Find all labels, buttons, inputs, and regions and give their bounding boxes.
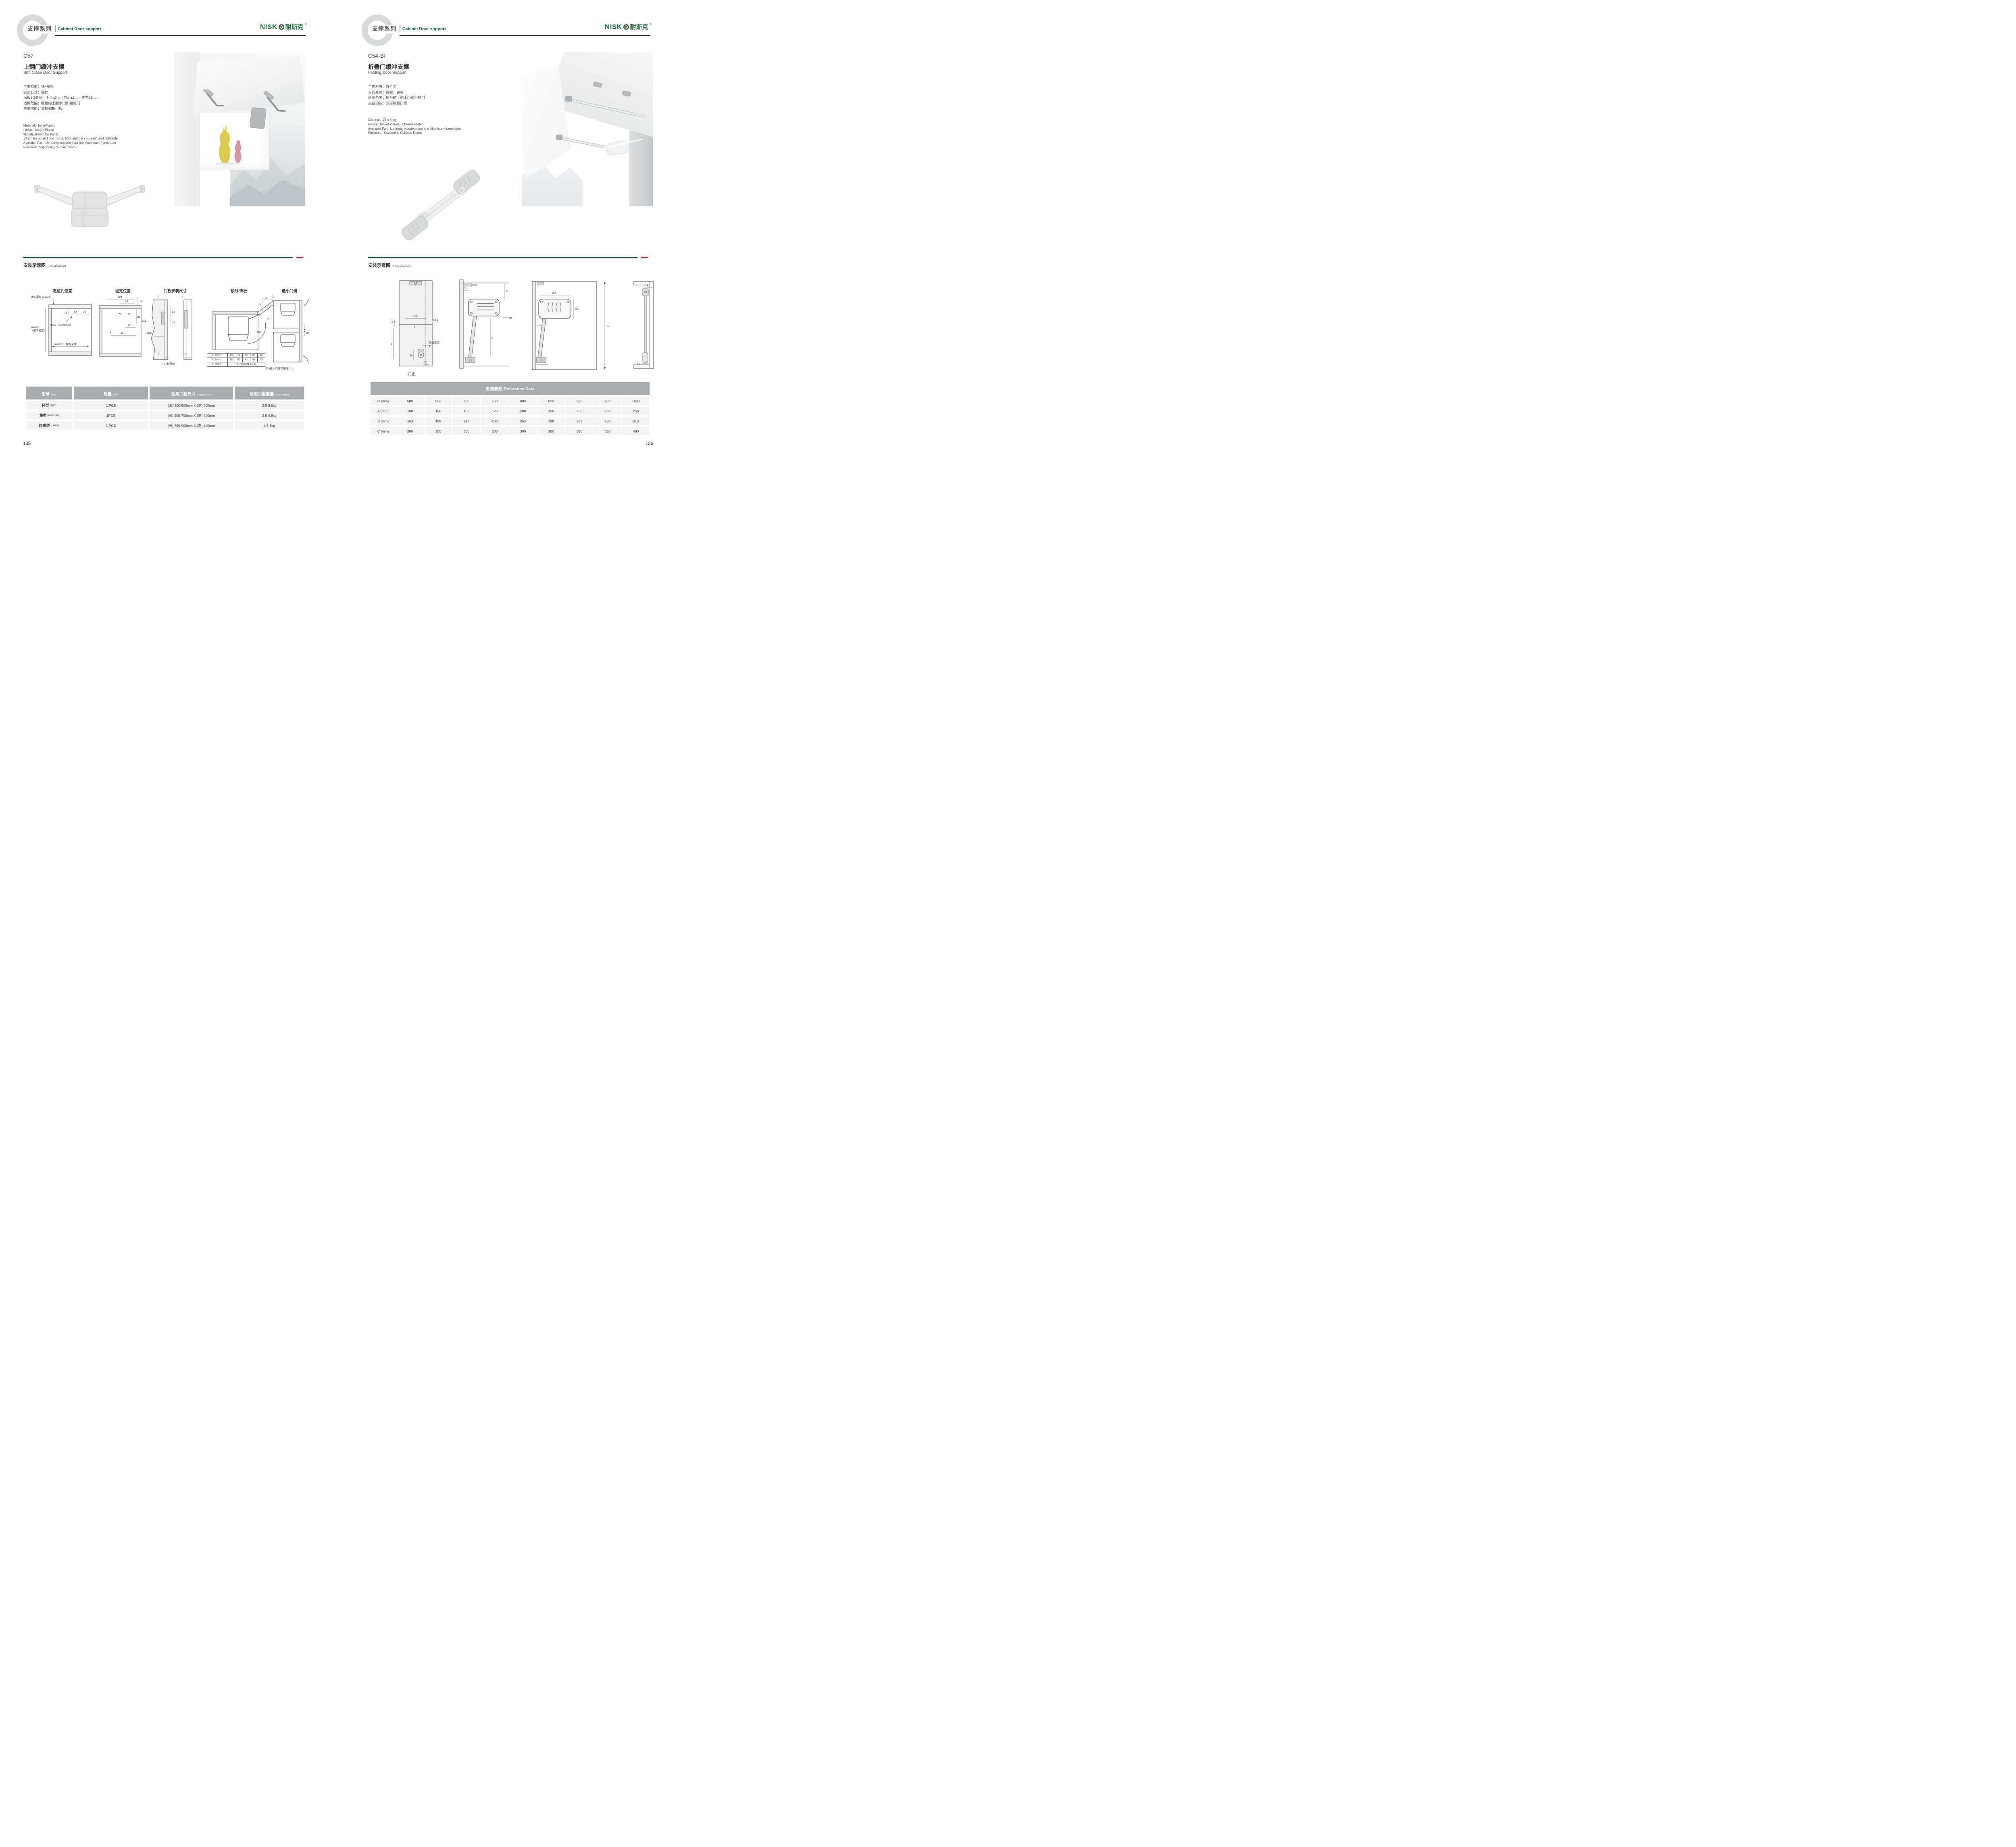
logo-o-icon bbox=[623, 24, 629, 30]
ref-cell: 288 bbox=[537, 417, 565, 425]
dim-label: 14.5 bbox=[390, 321, 396, 324]
ref-cell: 288 bbox=[594, 417, 621, 425]
dim-label: 12 bbox=[140, 300, 143, 303]
ref-cell: 208 bbox=[481, 417, 508, 425]
spec-line: Function：Supoorting Cabined Doors bbox=[23, 146, 118, 150]
ref-cell: 350 bbox=[566, 427, 593, 435]
dim-label: 64 bbox=[74, 311, 77, 314]
ref-cell: 200 bbox=[396, 427, 424, 435]
ref-cell: 213 bbox=[453, 417, 480, 425]
logo-registered-mark: ® bbox=[650, 23, 652, 26]
spec-line: 主要材质：锌合金 bbox=[368, 84, 425, 90]
table-cell: 1 PCS bbox=[74, 421, 148, 430]
header-rule bbox=[55, 35, 306, 36]
ref-cell: 900 bbox=[566, 397, 593, 405]
ref-cell: 188 bbox=[425, 417, 452, 425]
diagram-caption: T=门板厚度 bbox=[161, 362, 175, 366]
ref-cell: 200 bbox=[425, 427, 452, 435]
ref-cell: 263 bbox=[566, 417, 593, 425]
ref-cell: 200 bbox=[566, 407, 593, 415]
dim-label: 102 bbox=[575, 308, 579, 310]
ref-row-label: A (mm) bbox=[371, 407, 396, 415]
header-rule bbox=[400, 35, 650, 36]
photo-support-arms bbox=[522, 52, 653, 206]
ref-cell: 850 bbox=[537, 397, 565, 405]
series-title-en: Cabinet Door support bbox=[402, 27, 446, 31]
table-cell: 4.8-6kg bbox=[235, 421, 304, 430]
dim-label: MF bbox=[306, 332, 309, 335]
reference-table-title: 安装参数 Reference Data bbox=[371, 382, 650, 395]
dim-label: 124 bbox=[118, 296, 122, 299]
ref-cell: 100 bbox=[396, 407, 424, 415]
series-separator bbox=[400, 25, 400, 32]
page-number: 135 bbox=[23, 441, 31, 446]
catalog-spread: 支撑系列 Cabinet Door support NISK 耐斯克 ® C57… bbox=[0, 0, 676, 462]
logo-zh: 耐斯克 bbox=[285, 23, 304, 31]
table-cell: 重型(Medium) bbox=[26, 411, 72, 420]
ref-cell: 300 bbox=[453, 427, 480, 435]
ref-cell: 120 bbox=[481, 407, 508, 415]
ref-cell: 313 bbox=[622, 417, 650, 425]
diagram-caption: Fm最小门缝开启时2mm bbox=[266, 366, 314, 370]
series-title-zh: 支撑系列 bbox=[27, 25, 52, 33]
damper-block bbox=[250, 107, 266, 129]
dim-label: Φ5.2（深度5mm） bbox=[50, 323, 73, 327]
product-code: C57 bbox=[23, 53, 33, 59]
specs-zh: 主要材质：锌合金 表面处理：镀镍、镀铬 适用范围：橱柜的上翻木门和铝框门 主要功… bbox=[368, 84, 425, 106]
dim-label: min230（柜内深度） bbox=[54, 342, 79, 346]
table-header: 数量QTY bbox=[74, 387, 148, 399]
diagram-fixing-position: 固定位置 124 52 12 81 115 42 bbox=[97, 288, 149, 361]
reference-table: H (mm) 600 650 700 750 800 850 900 950 1… bbox=[371, 397, 650, 435]
dim-label: X bbox=[265, 297, 267, 300]
logo-dot-icon bbox=[280, 26, 282, 28]
diagram-door-profile: 24 12 bbox=[627, 278, 662, 374]
spec-line: 表面处理：镀镍 bbox=[23, 90, 98, 96]
spec-line: 3D adjustment for Panel： bbox=[23, 133, 118, 137]
divider-red bbox=[640, 257, 649, 258]
dim-label: A bbox=[506, 290, 508, 293]
folding-arm-lower bbox=[400, 183, 471, 242]
spec-line: Available For：Up-turnig wooden door and … bbox=[368, 127, 461, 131]
dim-label: 81 bbox=[137, 316, 141, 318]
spec-line: Finish：Nickel Plated、Chrome Plated bbox=[368, 123, 461, 127]
ref-cell: 250 bbox=[537, 407, 565, 415]
ref-cell: 250 bbox=[594, 407, 621, 415]
table-cell: (长) 500-700mm X (高) 400mm bbox=[150, 411, 233, 420]
diagram-cabinet-with-arm: 193 102 23 H 50 bbox=[528, 278, 613, 374]
product-title-en: Folding Door Support bbox=[368, 71, 406, 75]
ref-cell: 300 bbox=[481, 427, 508, 435]
table-header: 适用门板重量Door weight bbox=[235, 387, 304, 399]
spec-line: 主要功能：支撑橱柜门板 bbox=[368, 101, 425, 106]
logo-latin: NISK bbox=[605, 23, 622, 31]
dim-label: C bbox=[492, 337, 494, 339]
dim-label: 顶板厚度 max22 bbox=[31, 295, 50, 299]
spec-line: 表面处理：镀镍、镀铬 bbox=[368, 90, 425, 96]
dim-label: 12 bbox=[424, 361, 427, 364]
hardware-image-soft-close-supports bbox=[32, 185, 147, 229]
series-title-en: Cabinet Door support bbox=[58, 27, 101, 31]
ref-cell: 100 bbox=[453, 407, 480, 415]
dim-label: 12.5 bbox=[147, 332, 152, 335]
dim-label: T bbox=[181, 296, 183, 299]
dim-label: 侧板厚度 bbox=[429, 341, 440, 344]
ref-cell: 263 bbox=[509, 417, 537, 425]
divider-red bbox=[296, 257, 304, 258]
table-cell: 3.5-4.8kg bbox=[235, 411, 304, 420]
logo-latin: NISK bbox=[260, 23, 277, 31]
table-cell: (长) 700-900mm X (高) 400mm bbox=[150, 421, 233, 430]
product-title-zh: 上翻门缓冲支撑 bbox=[23, 62, 65, 71]
dim-label: 24 bbox=[645, 284, 648, 287]
ref-cell: 950 bbox=[594, 397, 621, 405]
specs-en: Material：Zinc Alloy Finish：Nickel Plated… bbox=[368, 118, 461, 135]
dim-label: 12 bbox=[637, 363, 640, 366]
photo-side-wall bbox=[174, 52, 200, 206]
spec-line: 适用范围：橱柜的上翻木门和铝框门 bbox=[368, 95, 425, 101]
dim-label: Y bbox=[259, 304, 261, 306]
ref-cell: 150 bbox=[425, 407, 452, 415]
spec-line: Material：Iron+Plastic bbox=[23, 124, 118, 128]
ref-cell: 350 bbox=[594, 427, 621, 435]
logo-o-icon bbox=[279, 24, 284, 30]
dim-label: 53 bbox=[172, 311, 175, 314]
logo-dot-icon bbox=[625, 26, 627, 28]
spec-line: ±2mm for up and down side, front and bac… bbox=[23, 137, 118, 141]
ref-cell: 300 bbox=[509, 427, 537, 435]
dim-label: min200 bbox=[31, 326, 40, 329]
dim-label: H bbox=[607, 325, 609, 328]
specs-zh: 主要材质：铁+塑料 表面处理：镀镍 面板3D调节：上下±2mm,前后±2mm,左… bbox=[23, 84, 98, 112]
ref-row-label: C (mm) bbox=[371, 427, 396, 435]
spec-line: 面板3D调节：上下±2mm,前后±2mm,左右±2mm bbox=[23, 95, 98, 101]
spec-table: 型号Type 数量QTY 适用门板尺寸Cabinet size 适用门板重量Do… bbox=[26, 387, 304, 430]
diagram-door-panel: 135 14.5 14.5 B 侧板厚度 54 12 bbox=[390, 278, 447, 372]
table-cell: 2.5-3.5kg bbox=[235, 401, 304, 410]
diagram-caption: 门板 bbox=[408, 372, 428, 376]
diagram-minimum-door-gap: 最小门缝 MF bbox=[269, 288, 310, 368]
dim-label: 110° bbox=[256, 331, 262, 334]
yellow-deer-figurine bbox=[219, 125, 230, 163]
specs-en: Material：Iron+Plastic Finish：Nickel Plat… bbox=[23, 124, 118, 150]
dim-label: T bbox=[185, 353, 187, 356]
dim-label: 42 bbox=[128, 324, 131, 327]
table-cell: 1PCS bbox=[74, 411, 148, 420]
photo-hinges bbox=[199, 89, 296, 130]
hardware-image-folding-arms bbox=[393, 157, 500, 246]
dim-label: 32 bbox=[172, 321, 175, 324]
dim-label: B bbox=[391, 343, 392, 345]
dim-label: 146 bbox=[119, 332, 124, 335]
ref-row-label: H (mm) bbox=[371, 397, 396, 405]
ref-cell: 400 bbox=[622, 427, 650, 435]
table-cell: (长) 300-500mm X (高) 400mm bbox=[150, 401, 233, 410]
diagram-side-section: 5 A 19 C bbox=[455, 278, 513, 372]
table-header: 适用门板尺寸Cabinet size bbox=[150, 387, 233, 399]
spec-line: Material：Zinc Alloy bbox=[368, 118, 461, 123]
dim-label: 135 bbox=[413, 315, 417, 318]
ref-cell: 650 bbox=[425, 397, 452, 405]
spec-line: Finish：Nickel Plated bbox=[23, 128, 118, 133]
ref-cell: 250 bbox=[622, 407, 650, 415]
ref-cell: 600 bbox=[396, 397, 424, 405]
product-title-zh: 折叠门缓冲支撑 bbox=[368, 62, 409, 71]
table-cell: 1 PCS bbox=[74, 401, 148, 410]
table-cell: 超重型(Large) bbox=[26, 421, 72, 430]
product-title-en: Soft Close Door Support bbox=[23, 71, 67, 75]
ref-cell: 200 bbox=[509, 407, 537, 415]
spec-line: 适用范围：橱柜的上翻木门和铝框门 bbox=[23, 101, 98, 106]
dim-label: 49 bbox=[64, 312, 67, 314]
product-photo-cabinet bbox=[174, 52, 305, 206]
ref-cell: 800 bbox=[509, 397, 537, 405]
dim-label: （柜内高度） bbox=[31, 329, 46, 332]
logo-zh: 耐斯克 bbox=[630, 23, 648, 31]
installation-heading: 安装示意图 Installation bbox=[368, 262, 410, 268]
ref-cell: 300 bbox=[537, 427, 565, 435]
ref-cell: 163 bbox=[396, 417, 424, 425]
dim-label: T bbox=[158, 353, 160, 356]
logo-registered-mark: ® bbox=[305, 23, 307, 26]
product-photo-folding-door bbox=[522, 52, 653, 206]
dim-label: 52 bbox=[125, 300, 128, 303]
divider-green bbox=[23, 257, 294, 258]
crown-molding-mini-table: D（mm） 16 18 22 26 28 X（mm） 55 50 42 34 2… bbox=[207, 353, 265, 367]
ref-cell: 700 bbox=[453, 397, 480, 405]
dim-label: T bbox=[157, 296, 159, 299]
diagram-positioning-holes: 定位孔位置 顶板厚度 max22 min200 （柜内高度） 49 64 36 bbox=[30, 288, 95, 361]
support-right bbox=[83, 185, 145, 227]
series-title-zh: 支撑系列 bbox=[372, 25, 396, 33]
spec-line: 主要材质：铁+塑料 bbox=[23, 84, 98, 90]
dim-label: 19 bbox=[509, 317, 512, 320]
table-cell: 轻型(light) bbox=[26, 401, 72, 410]
folding-arm-upper bbox=[415, 168, 481, 224]
brand-logo: NISK 耐斯克 ® bbox=[260, 23, 307, 31]
spec-line: 主要功能：支撑橱柜门板 bbox=[23, 106, 98, 112]
table-header: 型号Type bbox=[26, 387, 72, 399]
spec-line: Available For：Up-turnig wooden door and … bbox=[23, 141, 118, 146]
dim-label: 5 bbox=[464, 287, 466, 290]
page-gutter bbox=[338, 0, 338, 462]
pink-vase-figurine bbox=[235, 140, 242, 163]
dim-label: 14.5 bbox=[433, 319, 438, 322]
diagram-crown-molding: 顶线/饰板 Y X D FH 110° bbox=[202, 288, 276, 353]
brand-logo: NISK 耐斯克 ® bbox=[605, 23, 652, 31]
divider-green bbox=[368, 257, 638, 258]
ref-cell: 1000 bbox=[622, 397, 650, 405]
dim-label: 193 bbox=[552, 292, 556, 295]
spec-line: Function：Supoorting Cabined Doors bbox=[368, 131, 461, 135]
ref-row-label: B (mm) bbox=[371, 417, 396, 425]
dim-label: 54 bbox=[410, 354, 413, 357]
page-number: 136 bbox=[641, 441, 653, 446]
product-code: C54-BI bbox=[368, 53, 385, 59]
ref-cell: 750 bbox=[481, 397, 508, 405]
installation-heading: 安装示意图 Installation bbox=[23, 262, 66, 268]
diagram-door-panel-dimensions: 门板安装尺寸 T 53 32 12.5 T T bbox=[146, 288, 204, 368]
series-separator bbox=[55, 25, 56, 32]
dim-label: 36 bbox=[83, 311, 86, 314]
